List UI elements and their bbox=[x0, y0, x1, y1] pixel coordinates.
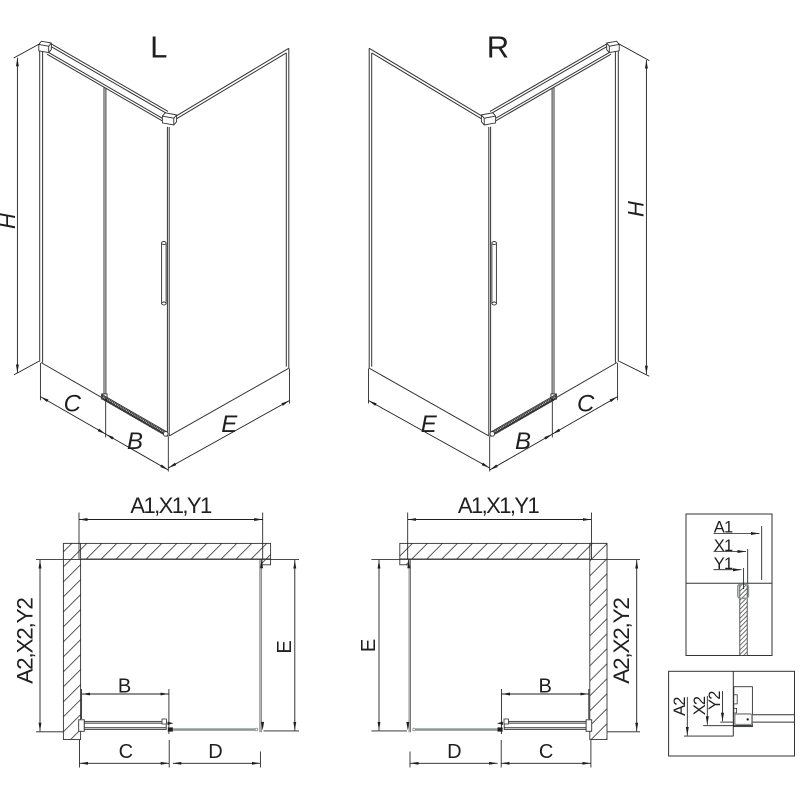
svg-text:C: C bbox=[64, 391, 82, 418]
svg-text:L: L bbox=[150, 30, 167, 65]
svg-text:Y2: Y2 bbox=[706, 691, 724, 710]
svg-text:C: C bbox=[577, 391, 595, 418]
svg-text:A2,X2,Y2: A2,X2,Y2 bbox=[609, 598, 634, 684]
svg-text:D: D bbox=[208, 741, 222, 763]
svg-text:E: E bbox=[421, 411, 438, 438]
svg-text:B: B bbox=[118, 675, 131, 697]
svg-text:C: C bbox=[539, 741, 553, 763]
svg-text:Y1: Y1 bbox=[714, 555, 733, 573]
svg-text:E: E bbox=[274, 640, 296, 653]
svg-text:A2,X2,Y2: A2,X2,Y2 bbox=[13, 598, 38, 684]
svg-text:C: C bbox=[119, 741, 133, 763]
svg-text:E: E bbox=[221, 411, 238, 438]
svg-text:B: B bbox=[515, 428, 531, 455]
svg-text:B: B bbox=[539, 675, 552, 697]
svg-text:R: R bbox=[487, 30, 509, 65]
svg-text:X1: X1 bbox=[714, 537, 733, 555]
svg-text:B: B bbox=[127, 428, 143, 455]
svg-text:A1,X1,Y1: A1,X1,Y1 bbox=[130, 493, 212, 518]
svg-text:A2: A2 bbox=[671, 697, 689, 716]
svg-text:D: D bbox=[447, 741, 461, 763]
svg-text:H: H bbox=[623, 201, 648, 217]
svg-text:E: E bbox=[358, 639, 380, 652]
svg-text:A1,X1,Y1: A1,X1,Y1 bbox=[458, 493, 540, 518]
svg-text:H: H bbox=[0, 213, 20, 229]
